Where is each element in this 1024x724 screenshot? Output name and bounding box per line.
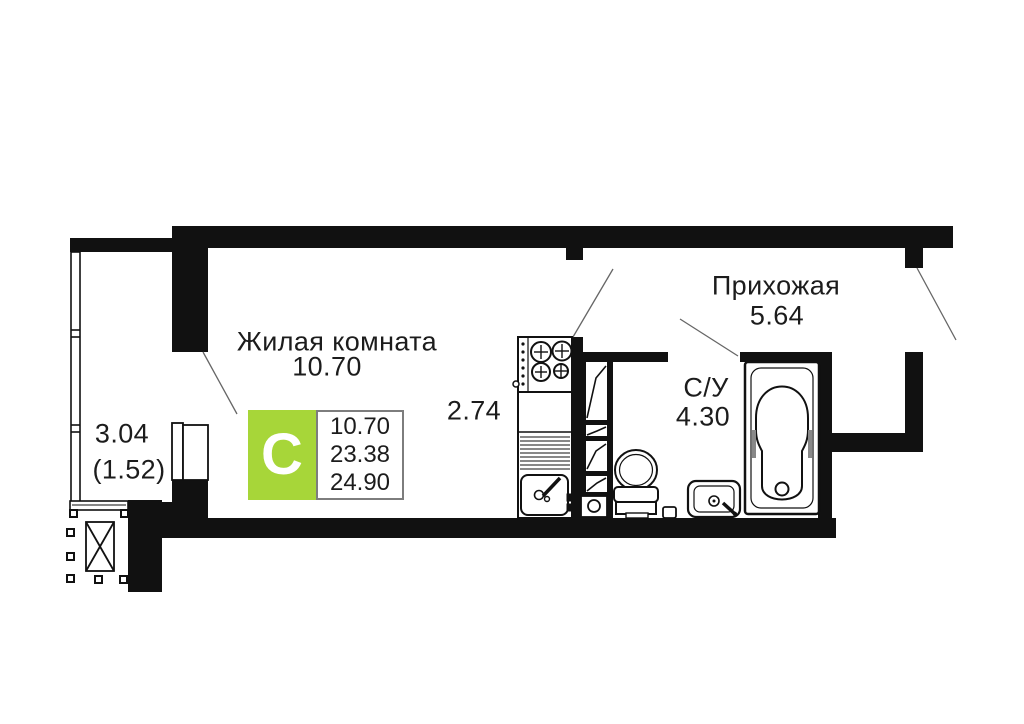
area-summary-box: 10.70 23.38 24.90: [316, 410, 404, 500]
kitchen-unit: [513, 337, 576, 518]
balcony-area: 3.04: [95, 419, 149, 450]
area-total: 23.38: [330, 441, 390, 469]
tub-grab-bar-left: [752, 430, 756, 458]
balcony-window: [71, 252, 80, 502]
stove: [518, 337, 572, 392]
apartment-type-letter: С: [261, 426, 303, 484]
bathroom-area: 4.30: [676, 402, 730, 433]
bathtub: [745, 362, 819, 514]
washing-machine: [581, 496, 607, 517]
area-total-balcony: 24.90: [330, 469, 390, 497]
balcony-door-swing-line: [203, 352, 237, 414]
tub-grab-bar-right: [808, 430, 812, 458]
hallway-label: Прихожая: [712, 271, 840, 302]
shaft-hatch-box: [86, 522, 114, 571]
bathroom-door-swing-line: [680, 319, 738, 356]
plan-graphics: [0, 0, 1024, 724]
toilet: [614, 450, 658, 518]
entrance-door-swing-line: [917, 268, 956, 340]
apartment-type-badge: С: [248, 410, 316, 500]
gas-valve: [513, 381, 519, 387]
washbasin: [688, 481, 740, 517]
balcony-parapet: [70, 501, 128, 510]
floor-item: [663, 507, 676, 518]
balcony-area-coef: (1.52): [93, 455, 166, 486]
area-living: 10.70: [330, 413, 390, 441]
hallway-area: 5.64: [750, 301, 804, 332]
kitchen-area: 2.74: [447, 396, 501, 427]
living-room-area: 10.70: [292, 352, 362, 383]
bathroom-label: С/У: [683, 373, 728, 404]
floor-plan: Жилая комната 10.70 Прихожая 5.64 С/У 4.…: [0, 0, 1024, 724]
kitchen-sink: [521, 475, 576, 515]
kitchen-door-swing-line: [573, 269, 613, 337]
balcony-door: [172, 423, 208, 480]
